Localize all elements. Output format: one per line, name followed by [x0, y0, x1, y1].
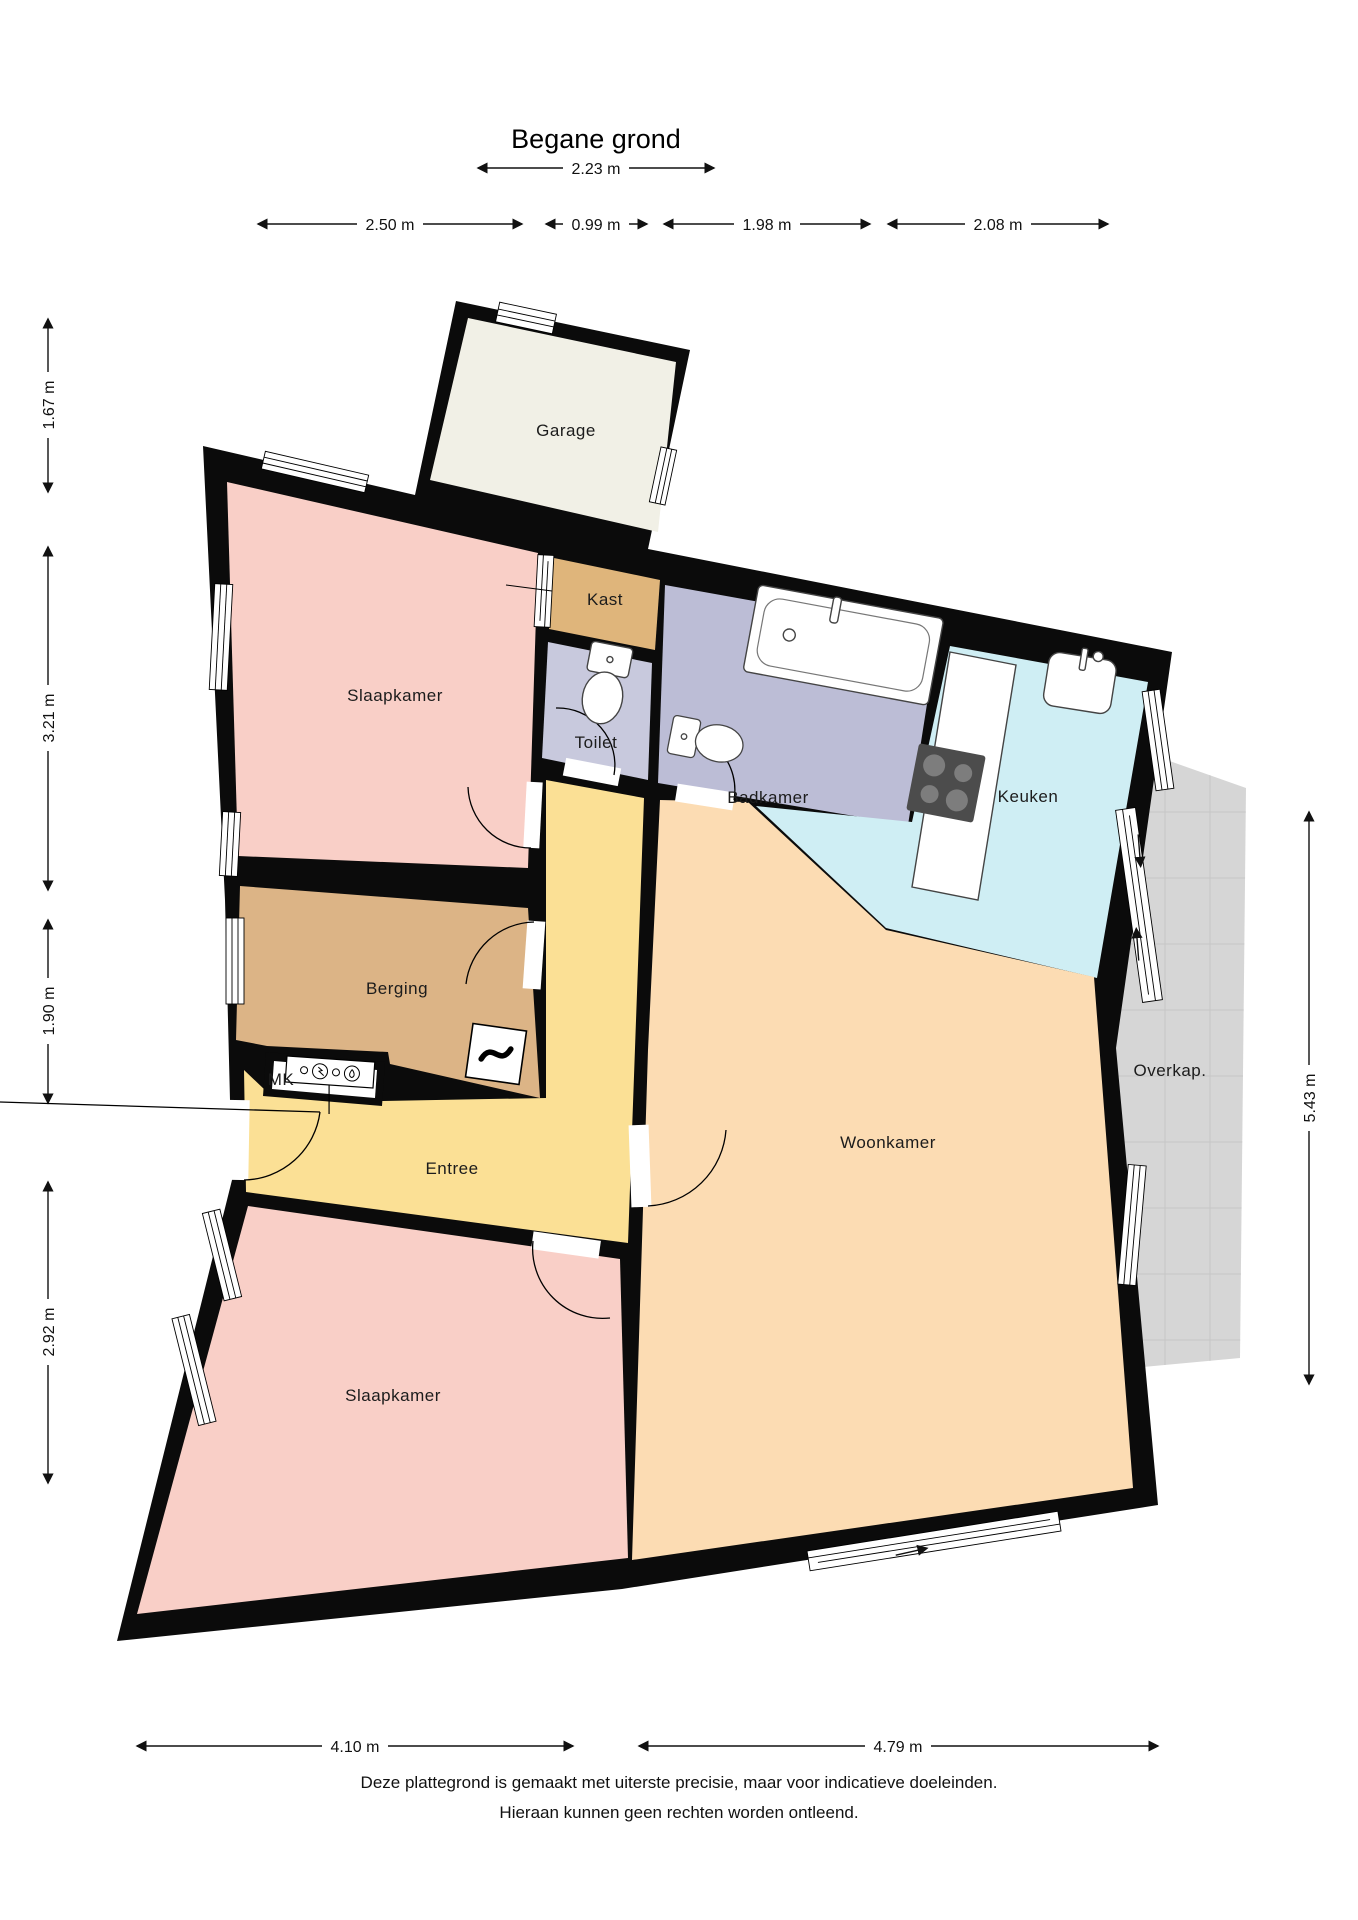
room-keuken-label: Keuken: [998, 787, 1059, 806]
washing-machine-icon: [466, 1024, 527, 1085]
room-garage-label: Garage: [536, 421, 596, 440]
room-woonkamer-label: Woonkamer: [840, 1133, 936, 1152]
dim-top-3: 1.98 m: [664, 213, 870, 235]
room-overkapping-label: Overkap.: [1134, 1061, 1207, 1080]
svg-text:5.43 m: 5.43 m: [1302, 1074, 1319, 1123]
window-berging-left: [226, 918, 244, 1004]
floor-plan-image: Begane grond 2.23 m 2.50 m 0.99 m 1.98 m…: [0, 0, 1358, 1920]
dim-bottom-2: 4.79 m: [639, 1735, 1158, 1757]
room-entree-label: Entree: [425, 1159, 478, 1178]
dim-top-1: 2.50 m: [258, 213, 522, 235]
room-meterkast-label: MK: [268, 1070, 295, 1089]
dim-top-garage: 2.23 m: [478, 157, 714, 179]
svg-text:4.79 m: 4.79 m: [874, 1739, 923, 1756]
room-toilet-label: Toilet: [575, 733, 618, 752]
dim-top-4: 2.08 m: [888, 213, 1108, 235]
room-slaapkamer1-label: Slaapkamer: [347, 686, 443, 705]
room-berging-label: Berging: [366, 979, 428, 998]
room-slaapkamer2-label: Slaapkamer: [345, 1386, 441, 1405]
stove-icon: [906, 743, 986, 823]
window-slaapkamer1-left-low: [219, 812, 240, 877]
dim-left-4: 2.92 m: [37, 1182, 59, 1483]
floor-plan-page: Begane grond 2.23 m 2.50 m 0.99 m 1.98 m…: [0, 0, 1358, 1920]
svg-text:3.21 m: 3.21 m: [41, 694, 58, 743]
dim-left-2: 3.21 m: [37, 547, 59, 890]
room-badkamer-label: Badkamer: [727, 788, 808, 807]
svg-text:2.50 m: 2.50 m: [366, 217, 415, 234]
dim-right-1: 5.43 m: [1298, 812, 1320, 1384]
svg-text:1.67 m: 1.67 m: [41, 381, 58, 430]
dim-left-3: 1.90 m: [37, 920, 59, 1103]
dim-top-2: 0.99 m: [546, 213, 647, 235]
svg-text:4.10 m: 4.10 m: [331, 1739, 380, 1756]
svg-text:2.92 m: 2.92 m: [41, 1308, 58, 1357]
page-title: Begane grond: [511, 124, 681, 154]
svg-text:1.90 m: 1.90 m: [41, 987, 58, 1036]
footer-line2: Hieraan kunnen geen rechten worden ontle…: [499, 1803, 858, 1822]
svg-text:2.23 m: 2.23 m: [572, 161, 621, 178]
room-kast-label: Kast: [587, 590, 623, 609]
footer-line1: Deze plattegrond is gemaakt met uiterste…: [361, 1773, 998, 1792]
svg-text:2.08 m: 2.08 m: [974, 217, 1023, 234]
svg-text:0.99 m: 0.99 m: [572, 217, 621, 234]
svg-text:1.98 m: 1.98 m: [743, 217, 792, 234]
dim-left-1: 1.67 m: [37, 319, 59, 492]
dim-bottom-1: 4.10 m: [137, 1735, 573, 1757]
